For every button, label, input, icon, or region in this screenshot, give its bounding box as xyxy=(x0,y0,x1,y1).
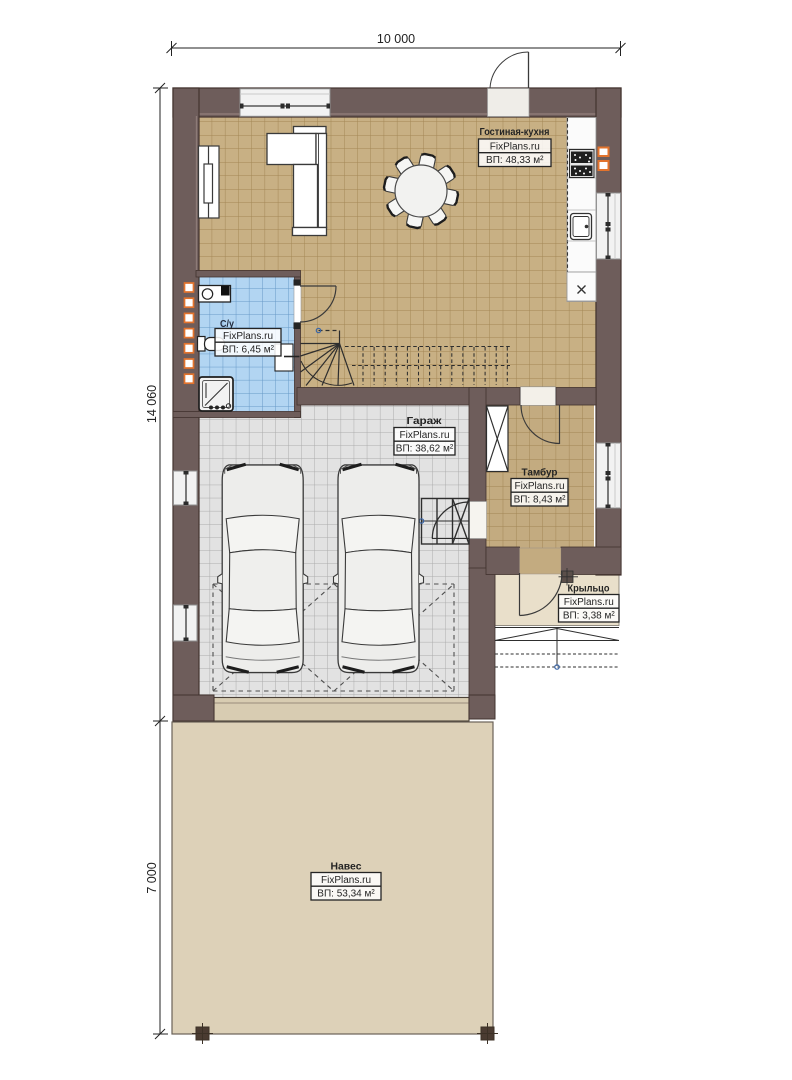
svg-text:ВП: 48,33 м²: ВП: 48,33 м² xyxy=(486,155,544,166)
svg-text:Навес: Навес xyxy=(331,861,362,873)
svg-text:ВП: 8,43 м²: ВП: 8,43 м² xyxy=(514,495,567,506)
svg-text:FixPlans.ru: FixPlans.ru xyxy=(399,430,449,441)
svg-text:Тамбур: Тамбур xyxy=(522,467,558,479)
svg-text:10 000: 10 000 xyxy=(377,32,415,46)
svg-text:Гараж: Гараж xyxy=(407,415,443,427)
svg-text:FixPlans.ru: FixPlans.ru xyxy=(321,875,371,886)
svg-text:14 060: 14 060 xyxy=(145,385,159,423)
svg-text:ВП: 38,62 м²: ВП: 38,62 м² xyxy=(396,444,454,455)
svg-text:ВП: 6,45 м²: ВП: 6,45 м² xyxy=(222,345,275,356)
svg-text:FixPlans.ru: FixPlans.ru xyxy=(564,597,614,608)
svg-text:FixPlans.ru: FixPlans.ru xyxy=(514,481,564,492)
svg-text:FixPlans.ru: FixPlans.ru xyxy=(490,142,540,153)
svg-text:ВП: 3,38 м²: ВП: 3,38 м² xyxy=(563,611,616,622)
svg-text:7 000: 7 000 xyxy=(145,862,159,893)
svg-text:FixPlans.ru: FixPlans.ru xyxy=(223,331,273,342)
svg-text:Крыльцо: Крыльцо xyxy=(568,583,610,595)
svg-text:ВП: 53,34 м²: ВП: 53,34 м² xyxy=(317,889,375,900)
svg-text:Гостиная-кухня: Гостиная-кухня xyxy=(480,126,550,138)
